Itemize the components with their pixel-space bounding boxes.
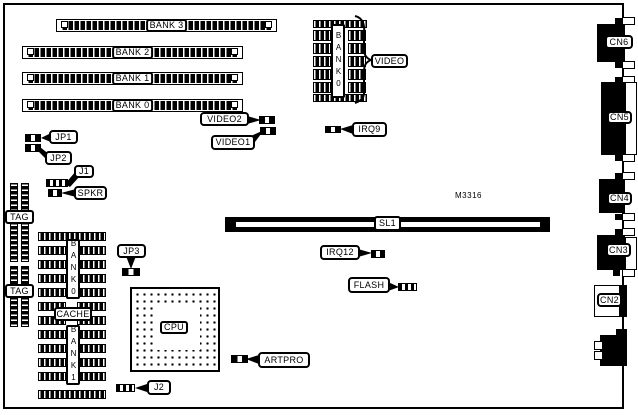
callout-jp3: JP3 bbox=[117, 244, 146, 258]
cache-label: CACHE bbox=[54, 307, 92, 321]
jumper-artpro bbox=[231, 355, 248, 363]
jumper-j2 bbox=[116, 384, 135, 392]
cache-bank1-vertical-label: BANK1 bbox=[66, 325, 80, 385]
irq12-pointer bbox=[358, 249, 372, 257]
connector-label-cn2: CN2 bbox=[597, 293, 622, 307]
j2-pointer bbox=[135, 384, 147, 392]
callout-irq12: IRQ12 bbox=[320, 245, 360, 260]
callout-j1: J1 bbox=[74, 165, 94, 178]
callout-j2: J2 bbox=[147, 380, 171, 395]
connector-label-cn5: CN5 bbox=[607, 111, 632, 124]
part-number: M3316 bbox=[455, 192, 482, 200]
callout-artpro: ARTPRO bbox=[258, 352, 310, 368]
jumper-video2 bbox=[259, 116, 275, 124]
callout-video: VIDEO bbox=[371, 54, 408, 68]
jumper-jp2 bbox=[25, 144, 41, 152]
jumper-jp1 bbox=[25, 134, 41, 142]
jumper-irq9 bbox=[325, 126, 341, 133]
jumper-video1 bbox=[260, 127, 276, 135]
video-brace bbox=[355, 16, 371, 103]
callout-irq9: IRQ9 bbox=[352, 122, 387, 137]
callout-spkr: SPKR bbox=[74, 186, 107, 200]
callout-video1: VIDEO1 bbox=[211, 135, 255, 150]
jumper-spkr bbox=[48, 189, 62, 197]
pointer-lines bbox=[0, 0, 638, 415]
callout-video2: VIDEO2 bbox=[200, 112, 249, 126]
callout-flash: FLASH bbox=[348, 277, 390, 293]
motherboard-diagram: BANK 3 BANK 2 BANK 1 BANK 0 BANK0 VIDEO bbox=[0, 0, 638, 415]
callout-jp2: JP2 bbox=[45, 151, 72, 165]
cpu-label: CPU bbox=[160, 321, 188, 334]
video-bank-vertical-label: BANK0 bbox=[331, 24, 345, 98]
sl1-label: SL1 bbox=[374, 216, 401, 231]
callout-jp1: JP1 bbox=[49, 130, 78, 144]
cache-bank0-vertical-label: BANK0 bbox=[66, 239, 80, 299]
jumper-j1 bbox=[46, 179, 68, 187]
connector-label-cn3: CN3 bbox=[606, 243, 631, 257]
tag-label-2: TAG bbox=[5, 284, 34, 298]
tag-label-1: TAG bbox=[5, 210, 34, 224]
jumper-jp3 bbox=[122, 268, 140, 276]
jumper-irq12 bbox=[371, 250, 385, 258]
jumper-flash bbox=[398, 283, 417, 291]
connector-label-cn4: CN4 bbox=[607, 192, 632, 205]
connector-label-cn6: CN6 bbox=[605, 35, 633, 49]
